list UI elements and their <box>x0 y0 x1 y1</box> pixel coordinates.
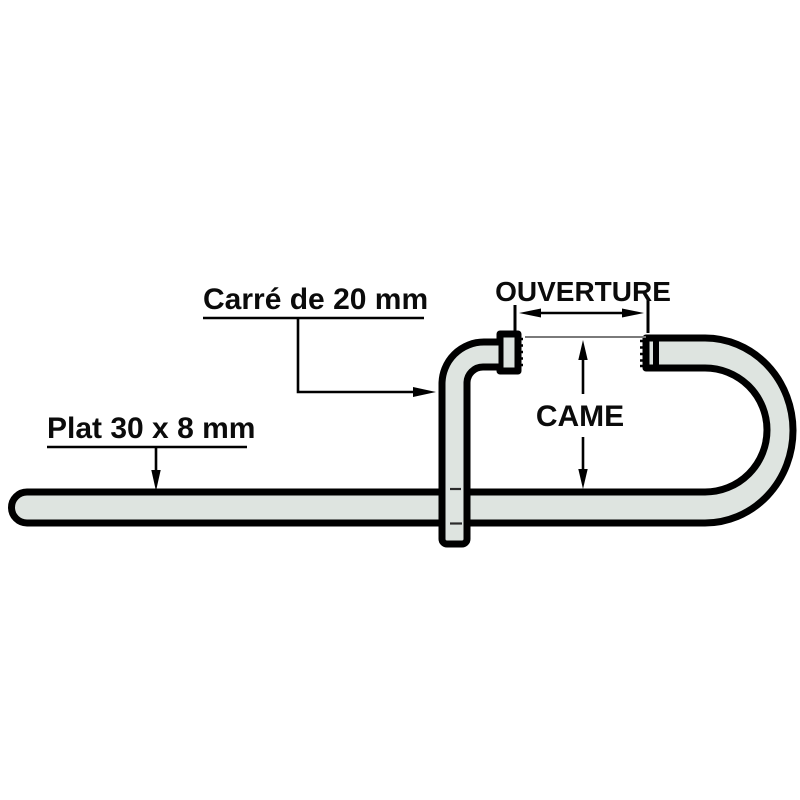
carre-arrowhead <box>413 387 436 397</box>
ouverture-arrowhead-right <box>622 309 644 318</box>
clamp-diagram: Carré de 20 mm Plat 30 x 8 mm OUVERTURE … <box>0 0 800 800</box>
plat-arrowhead <box>151 470 160 491</box>
plat-leader <box>47 447 247 491</box>
ouverture-arrowhead-left <box>519 309 541 318</box>
came-arrowhead-up <box>578 340 587 360</box>
ouverture-label: OUVERTURE <box>495 276 671 307</box>
right-jaw-divider <box>653 337 659 369</box>
plat-label: Plat 30 x 8 mm <box>47 412 255 445</box>
carre-label: Carré de 20 mm <box>203 283 428 316</box>
carre-leader <box>203 318 436 397</box>
technical-diagram-page: Carré de 20 mm Plat 30 x 8 mm OUVERTURE … <box>0 0 800 800</box>
came-label: CAME <box>536 400 624 433</box>
carre-leader-line <box>298 318 416 392</box>
came-arrowhead-down <box>578 469 587 489</box>
